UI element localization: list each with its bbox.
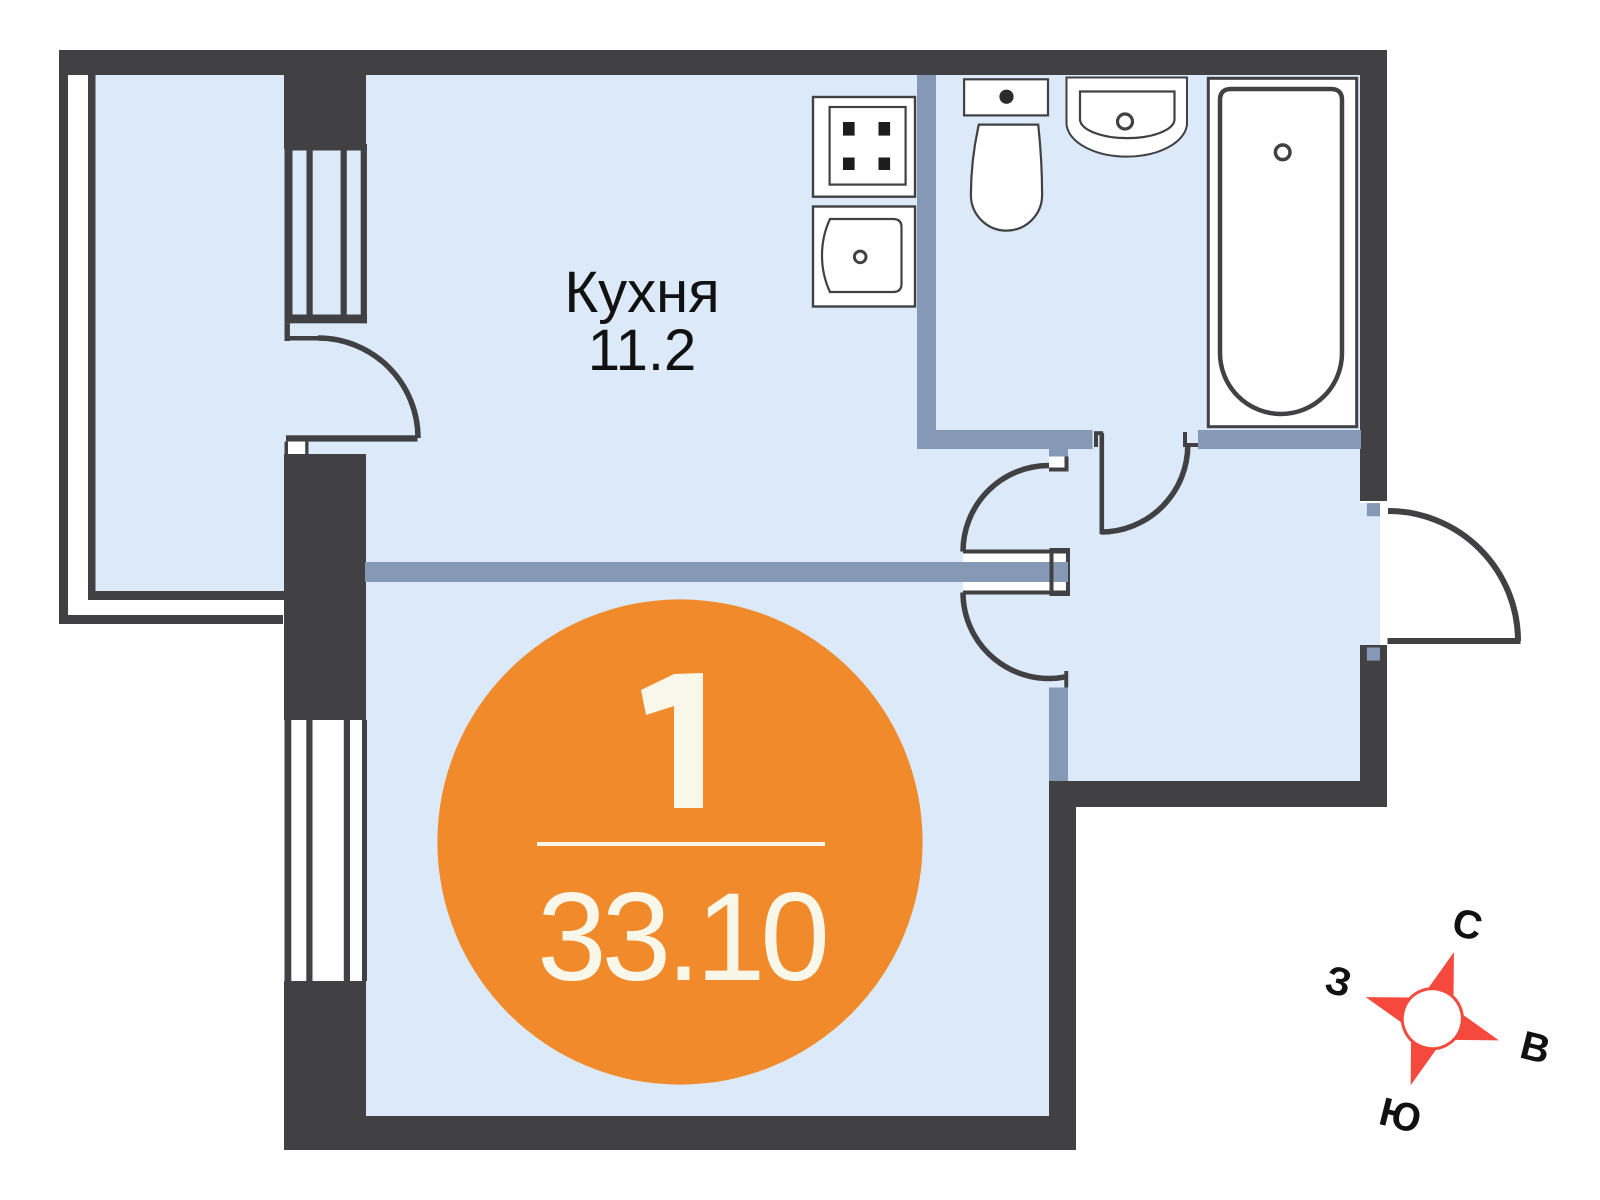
svg-text:Кухня: Кухня <box>564 260 719 325</box>
svg-text:33.10: 33.10 <box>537 868 825 1007</box>
svg-text:11.2: 11.2 <box>588 318 697 383</box>
